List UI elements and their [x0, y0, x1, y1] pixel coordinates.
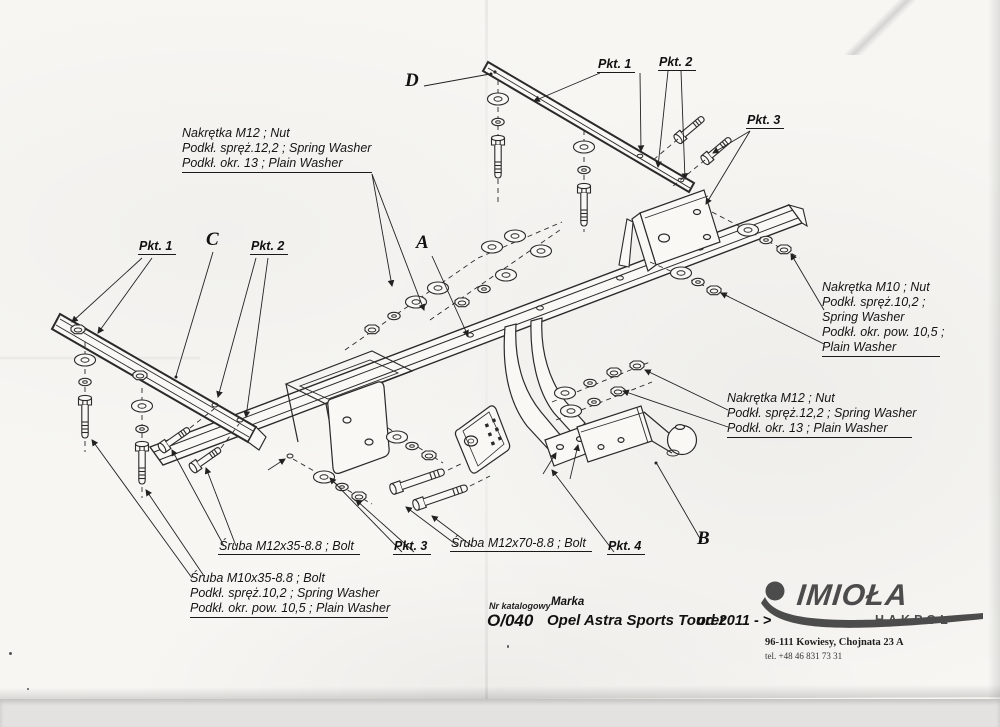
scanned-assembly-sheet: D Pkt. 1 Pkt. 2 Pkt. 3 Nakrętka M12 ; Nu…	[0, 0, 1000, 727]
part-letter-c: C	[206, 229, 219, 251]
note-line: Podkł. okr. 13 ; Plain Washer	[182, 156, 372, 171]
pkt-label-bottom-3: Pkt. 3	[393, 539, 431, 555]
label-bolt-m12x70: Śruba M12x70-8.8 ; Bolt	[450, 536, 592, 552]
note-top-left-m12: Nakrętka M12 ; Nut Podkł. spręż.12,2 ; S…	[182, 126, 372, 173]
beam-hardware-cluster	[345, 222, 562, 350]
pkt-label-left-1: Pkt. 1	[138, 239, 176, 255]
note-bottom-left-bolt: Śruba M10x35-8.8 ; Bolt Podkł. spręż.10,…	[190, 571, 388, 618]
note-line: Podkł. spręż.10,2 ;	[822, 295, 940, 310]
note-line: Śruba M10x35-8.8 ; Bolt	[190, 571, 388, 586]
note-line: Nakrętka M12 ; Nut	[182, 126, 372, 141]
note-right-m12: Nakrętka M12 ; Nut Podkł. spręż.12,2 ; S…	[727, 391, 912, 438]
note-line: Nakrętka M12 ; Nut	[727, 391, 912, 406]
note-line: Nakrętka M10 ; Nut	[822, 280, 940, 295]
bolt	[699, 135, 733, 166]
logo-phone: tel. +48 46 831 73 31	[765, 651, 842, 661]
long-bolt	[389, 466, 446, 495]
note-line: Podkł. okr. 13 ; Plain Washer	[727, 421, 912, 436]
logo-brand-text: IMIOŁA	[795, 579, 910, 613]
pkt-label-top-1: Pkt. 1	[597, 57, 635, 73]
part-letter-b: B	[697, 528, 710, 550]
catalog-number-label: Nr katalogowy	[489, 601, 551, 611]
note-line: Podkł. okr. pow. 10,5 ; Plain Washer	[190, 601, 388, 616]
pkt-label-top-2: Pkt. 2	[658, 55, 696, 71]
part-letter-a: A	[416, 232, 429, 254]
make-label: Marka	[551, 596, 584, 608]
manufacturer-logo: IMIOŁA HAKPOL 96-111 Kowiesy, Chojnata 2…	[757, 579, 995, 674]
catalog-number-value: O/040	[487, 611, 533, 631]
note-line: Podkł. spręż.12,2 ; Spring Washer	[727, 406, 912, 421]
note-line: Podkł. spręż.12,2 ; Spring Washer	[182, 141, 372, 156]
label-bolt-m12x35: Śruba M12x35-8.8 ; Bolt	[218, 539, 360, 555]
pkt-label-top-3: Pkt. 3	[746, 113, 784, 129]
pkt-label-left-2: Pkt. 2	[250, 239, 288, 255]
socket-plate	[455, 406, 509, 473]
note-line: Spring Washer	[822, 310, 940, 325]
beam-fin	[619, 219, 633, 267]
note-right-m10: Nakrętka M10 ; Nut Podkł. spręż.10,2 ; S…	[822, 280, 940, 357]
pkt-label-bottom-4: Pkt. 4	[607, 539, 645, 555]
long-bolt	[412, 482, 469, 511]
note-line: Plain Washer	[822, 340, 940, 355]
logo-address: 96-111 Kowiesy, Chojnata 23 A	[765, 637, 904, 648]
bolt	[672, 114, 706, 145]
note-line: Podkł. okr. pow. 10,5 ;	[822, 325, 940, 340]
note-line: Podkł. spręż.10,2 ; Spring Washer	[190, 586, 388, 601]
tow-ball-arm	[577, 406, 697, 462]
part-letter-d: D	[405, 70, 419, 92]
logo-division-text: HAKPOL	[875, 613, 952, 627]
